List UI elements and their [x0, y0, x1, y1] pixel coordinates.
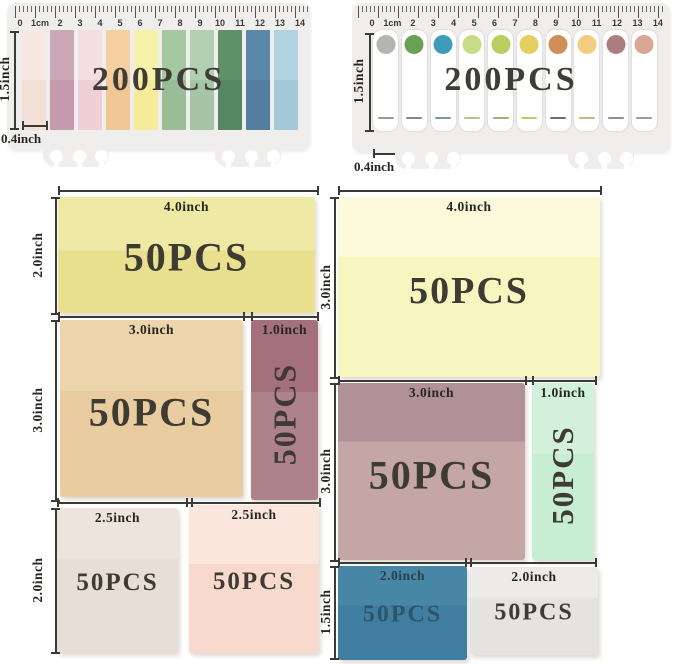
- ruler-number: 0: [362, 18, 382, 28]
- tab-color-dot: [606, 35, 625, 54]
- ruler-number: 1cm: [30, 18, 50, 28]
- height-dimension-label: 1.5inch: [318, 572, 334, 652]
- dimension-tick: [51, 197, 60, 199]
- dimension-tick: [46, 121, 48, 130]
- dimension-tick: [51, 652, 60, 654]
- tab-color-dash: [608, 117, 624, 119]
- ruler-number: 6: [130, 18, 150, 28]
- dimension-tick: [373, 149, 375, 158]
- ruler-number: 5: [464, 18, 484, 28]
- ruler-number: 3: [70, 18, 90, 28]
- ruler-number: 9: [546, 18, 566, 28]
- tab-color-dot: [462, 35, 481, 54]
- sticky-note: 2.5inch50PCS: [189, 505, 319, 653]
- note-pcs-label: 50PCS: [124, 234, 250, 281]
- tab-color-dash: [464, 117, 480, 119]
- ruler-number: 10: [210, 18, 230, 28]
- note-pcs-label: 50PCS: [494, 599, 573, 626]
- dimension-tick: [51, 508, 60, 510]
- dimension-tick: [330, 560, 339, 562]
- ruler-number: 13: [270, 18, 290, 28]
- tab-color-dash: [521, 117, 537, 119]
- dimension-tick: [330, 566, 339, 568]
- sticky-note: 3.0inch50PCS: [338, 383, 525, 560]
- note-size-label: 2.0inch: [470, 569, 598, 585]
- dimension-tick: [251, 312, 253, 321]
- binder-hole-slot: [54, 159, 59, 168]
- height-dimension-line: [14, 31, 16, 128]
- sticky-note: 1.0inch50PCS: [251, 320, 318, 500]
- dimension-tick: [338, 186, 340, 195]
- ruler-number: 6: [485, 18, 505, 28]
- width-dimension-line: [338, 190, 600, 192]
- binder-notch-cluster: [395, 144, 461, 169]
- height-dimension-label: 2.0inch: [30, 215, 46, 295]
- note-size-label: 3.0inch: [338, 385, 525, 401]
- sticky-note: 4.0inch50PCS: [58, 197, 315, 313]
- dimension-tick: [330, 658, 339, 660]
- count-label: 200PCS: [352, 61, 670, 99]
- note-pcs-label: 50PCS: [76, 569, 158, 597]
- dimension-tick: [525, 376, 527, 385]
- dimension-tick: [243, 312, 245, 321]
- height-dimension-label: 3.0inch: [318, 431, 334, 511]
- note-pcs-label: 50PCS: [266, 362, 303, 464]
- sticky-note: 2.0inch50PCS: [470, 567, 598, 655]
- note-pcs-label: 50PCS: [89, 389, 215, 436]
- ruler-number: 12: [607, 18, 627, 28]
- sticky-note: 1.0inch50PCS: [532, 383, 594, 560]
- tab-color-dash: [493, 117, 509, 119]
- height-dimension-line: [55, 320, 57, 500]
- height-dimension-label: 3.0inch: [30, 370, 46, 450]
- binder-hole-slot: [451, 161, 456, 170]
- ruler-number: 7: [505, 18, 525, 28]
- height-dimension-label: 2.0inch: [30, 540, 46, 620]
- ruler-number: 4: [90, 18, 110, 28]
- height-dimension-line: [55, 508, 57, 652]
- ruler-card-strips: 01cm234567891011121314200PCS1.5inch0.4in…: [7, 3, 310, 150]
- width-dimension-line: [338, 562, 595, 564]
- ruler-number: 8: [170, 18, 190, 28]
- height-dimension-label: 1.5inch: [351, 41, 367, 121]
- ruler-numbers: 01cm234567891011121314: [362, 18, 668, 28]
- dimension-tick: [470, 558, 472, 567]
- width-dimension-line: [338, 380, 595, 382]
- note-pcs-label: 50PCS: [545, 425, 581, 525]
- dimension-tick: [10, 31, 19, 33]
- note-pcs-label: 50PCS: [409, 269, 529, 313]
- dimension-tick: [191, 498, 193, 507]
- dimension-tick: [22, 121, 24, 130]
- ruler-number: 13: [627, 18, 647, 28]
- tab-color-dot: [376, 35, 395, 54]
- note-size-label: 1.0inch: [532, 385, 594, 401]
- binder-hole-slot: [406, 161, 411, 170]
- sticky-note: 4.0inch50PCS: [338, 197, 600, 377]
- dimension-tick: [465, 558, 467, 567]
- dimension-tick: [330, 383, 339, 385]
- dimension-tick: [51, 500, 60, 502]
- binder-hole-slot: [99, 159, 104, 168]
- sticky-note: 3.0inch50PCS: [60, 320, 243, 497]
- tab-color-dash: [406, 117, 422, 119]
- width-dimension-line: [373, 153, 397, 155]
- width-dimension-label: 0.4inch: [1, 131, 41, 147]
- dimension-tick: [186, 498, 188, 507]
- tab-color-dot: [577, 35, 596, 54]
- ruler-number: 10: [566, 18, 586, 28]
- dimension-tick: [10, 128, 19, 130]
- product-diagram: 01cm234567891011121314200PCS1.5inch0.4in…: [0, 0, 679, 664]
- ruler-card-tabs: 01cm234567891011121314200PCS1.5inch0.4in…: [352, 3, 670, 152]
- binder-hole-slot: [624, 161, 629, 170]
- height-dimension-line: [334, 197, 336, 377]
- binder-hole-slot: [271, 159, 276, 168]
- dimension-tick: [51, 313, 60, 315]
- binder-notch-cluster: [568, 144, 634, 169]
- binder-hole-slot: [602, 161, 607, 170]
- tab-color-dash: [435, 117, 451, 119]
- binder-hole-slot: [429, 161, 434, 170]
- ruler-number: 2: [50, 18, 70, 28]
- height-dimension-line: [55, 197, 57, 313]
- ruler-number: 12: [250, 18, 270, 28]
- sticky-note: 2.5inch50PCS: [57, 508, 178, 653]
- height-dimension-line: [369, 33, 371, 130]
- height-dimension-label: 3.0inch: [318, 247, 334, 327]
- ruler-number: 9: [190, 18, 210, 28]
- dimension-tick: [317, 186, 319, 195]
- ruler-major-ticks: [15, 6, 309, 18]
- binder-hole-slot: [579, 161, 584, 170]
- note-size-label: 4.0inch: [58, 199, 315, 215]
- note-size-label: 3.0inch: [60, 322, 243, 338]
- note-size-label: 2.0inch: [338, 568, 467, 584]
- width-dimension-line: [58, 190, 317, 192]
- note-pcs-label: 50PCS: [363, 601, 442, 628]
- binder-notch-cluster: [43, 142, 109, 167]
- width-dimension-label: 0.4inch: [354, 159, 394, 175]
- tab-color-dash: [378, 117, 394, 119]
- binder-hole-slot: [77, 159, 82, 168]
- ruler-number: 1cm: [382, 18, 402, 28]
- note-pcs-label: 50PCS: [213, 568, 295, 596]
- ruler-number: 14: [648, 18, 668, 28]
- width-dimension-line: [22, 125, 46, 127]
- width-dimension-line: [58, 316, 317, 318]
- binder-hole-slot: [226, 159, 231, 168]
- tab-color-dot: [549, 35, 568, 54]
- binder-hole-slot: [249, 159, 254, 168]
- dimension-tick: [330, 377, 339, 379]
- tab-color-dot: [434, 35, 453, 54]
- tab-color-dot: [520, 35, 539, 54]
- tab-color-dash: [636, 117, 652, 119]
- count-label: 200PCS: [7, 61, 310, 99]
- height-dimension-line: [334, 383, 336, 560]
- note-size-label: 2.5inch: [189, 507, 319, 523]
- ruler-numbers: 01cm234567891011121314: [10, 18, 310, 28]
- tab-color-dot: [635, 35, 654, 54]
- ruler-number: 14: [290, 18, 310, 28]
- ruler-major-ticks: [358, 6, 664, 18]
- binder-notch-cluster: [215, 142, 281, 167]
- width-dimension-line: [57, 502, 319, 504]
- tab-color-dash: [550, 117, 566, 119]
- ruler-number: 11: [587, 18, 607, 28]
- dimension-tick: [365, 130, 374, 132]
- ruler-number: 3: [423, 18, 443, 28]
- dimension-tick: [365, 33, 374, 35]
- ruler-number: 0: [10, 18, 30, 28]
- ruler-number: 11: [230, 18, 250, 28]
- dimension-tick: [600, 186, 602, 195]
- dimension-tick: [595, 558, 597, 567]
- dimension-tick: [595, 376, 597, 385]
- dimension-tick: [51, 320, 60, 322]
- dimension-tick: [532, 376, 534, 385]
- height-dimension-label: 1.5inch: [0, 39, 13, 119]
- dimension-tick: [58, 186, 60, 195]
- note-size-label: 1.0inch: [251, 322, 318, 338]
- note-pcs-label: 50PCS: [369, 452, 495, 499]
- tab-color-dot: [405, 35, 424, 54]
- ruler-number: 4: [444, 18, 464, 28]
- ruler-number: 5: [110, 18, 130, 28]
- ruler-number: 2: [403, 18, 423, 28]
- height-dimension-line: [334, 566, 336, 658]
- sticky-note: 2.0inch50PCS: [338, 566, 467, 660]
- tab-color-dash: [579, 117, 595, 119]
- note-size-label: 4.0inch: [338, 199, 600, 215]
- dimension-tick: [330, 197, 339, 199]
- ruler-number: 8: [525, 18, 545, 28]
- ruler-number: 7: [150, 18, 170, 28]
- tab-color-dot: [491, 35, 510, 54]
- note-size-label: 2.5inch: [57, 510, 178, 526]
